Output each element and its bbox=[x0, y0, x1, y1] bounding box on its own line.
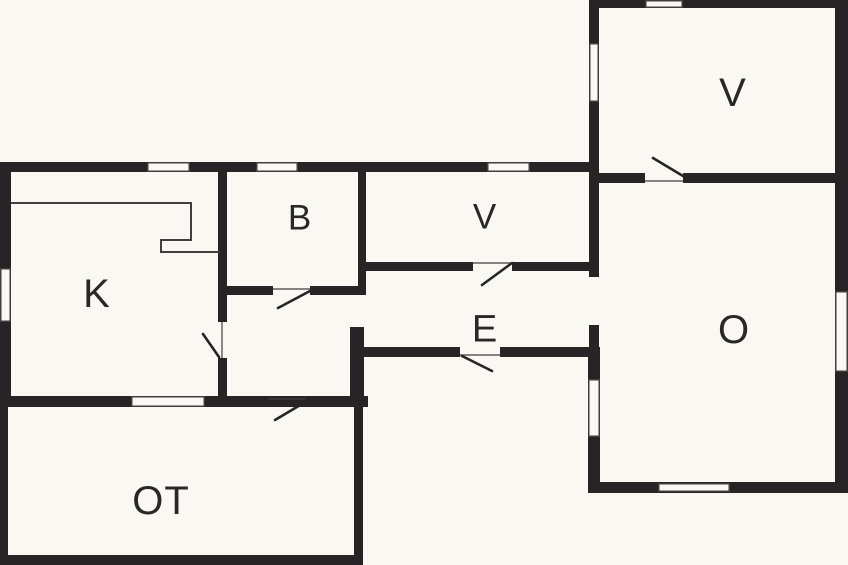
wall-segment bbox=[218, 358, 227, 396]
room-label-b: B bbox=[288, 198, 312, 237]
wall-segment bbox=[350, 327, 364, 407]
door-leaf bbox=[462, 356, 492, 371]
floorplan-page: KBVEOTVO bbox=[0, 0, 848, 565]
door-leaf bbox=[278, 291, 310, 308]
door-leaf bbox=[482, 263, 512, 285]
room-label-k: K bbox=[83, 272, 111, 316]
window bbox=[257, 163, 298, 172]
wall-segment bbox=[220, 286, 273, 295]
wall-segment bbox=[589, 0, 599, 277]
window bbox=[836, 292, 848, 372]
room-label-o: O bbox=[718, 308, 750, 352]
wall-segment bbox=[358, 172, 366, 290]
wall-segment bbox=[0, 555, 363, 565]
window bbox=[132, 397, 205, 407]
wall-segment bbox=[350, 347, 460, 357]
wall-segment bbox=[354, 407, 363, 565]
window bbox=[488, 163, 530, 172]
door-leaf bbox=[203, 334, 219, 357]
kitchen-counter bbox=[11, 203, 220, 252]
wall-segment bbox=[0, 407, 8, 565]
window bbox=[659, 484, 730, 492]
wall-segment bbox=[500, 347, 600, 357]
floorplan-canvas: KBVEOTVO bbox=[0, 0, 848, 565]
window bbox=[148, 163, 190, 172]
wall-segment bbox=[310, 286, 366, 295]
room-label-e: E bbox=[472, 308, 498, 350]
wall-segment bbox=[599, 173, 645, 183]
wall-segment bbox=[589, 325, 599, 347]
room-label-v-middle: V bbox=[473, 197, 497, 236]
wall-segment bbox=[512, 262, 589, 271]
window bbox=[646, 1, 683, 8]
room-label-v-upper: V bbox=[719, 71, 747, 115]
window bbox=[1, 269, 11, 322]
wall-segment bbox=[590, 0, 848, 8]
wall-segment bbox=[358, 262, 473, 271]
wall-segment bbox=[835, 0, 848, 493]
door-leaf bbox=[653, 158, 683, 176]
window bbox=[589, 380, 600, 437]
room-label-ot: OT bbox=[132, 479, 190, 523]
wall-segment bbox=[218, 172, 227, 322]
window bbox=[590, 44, 599, 102]
wall-segment bbox=[683, 173, 848, 183]
